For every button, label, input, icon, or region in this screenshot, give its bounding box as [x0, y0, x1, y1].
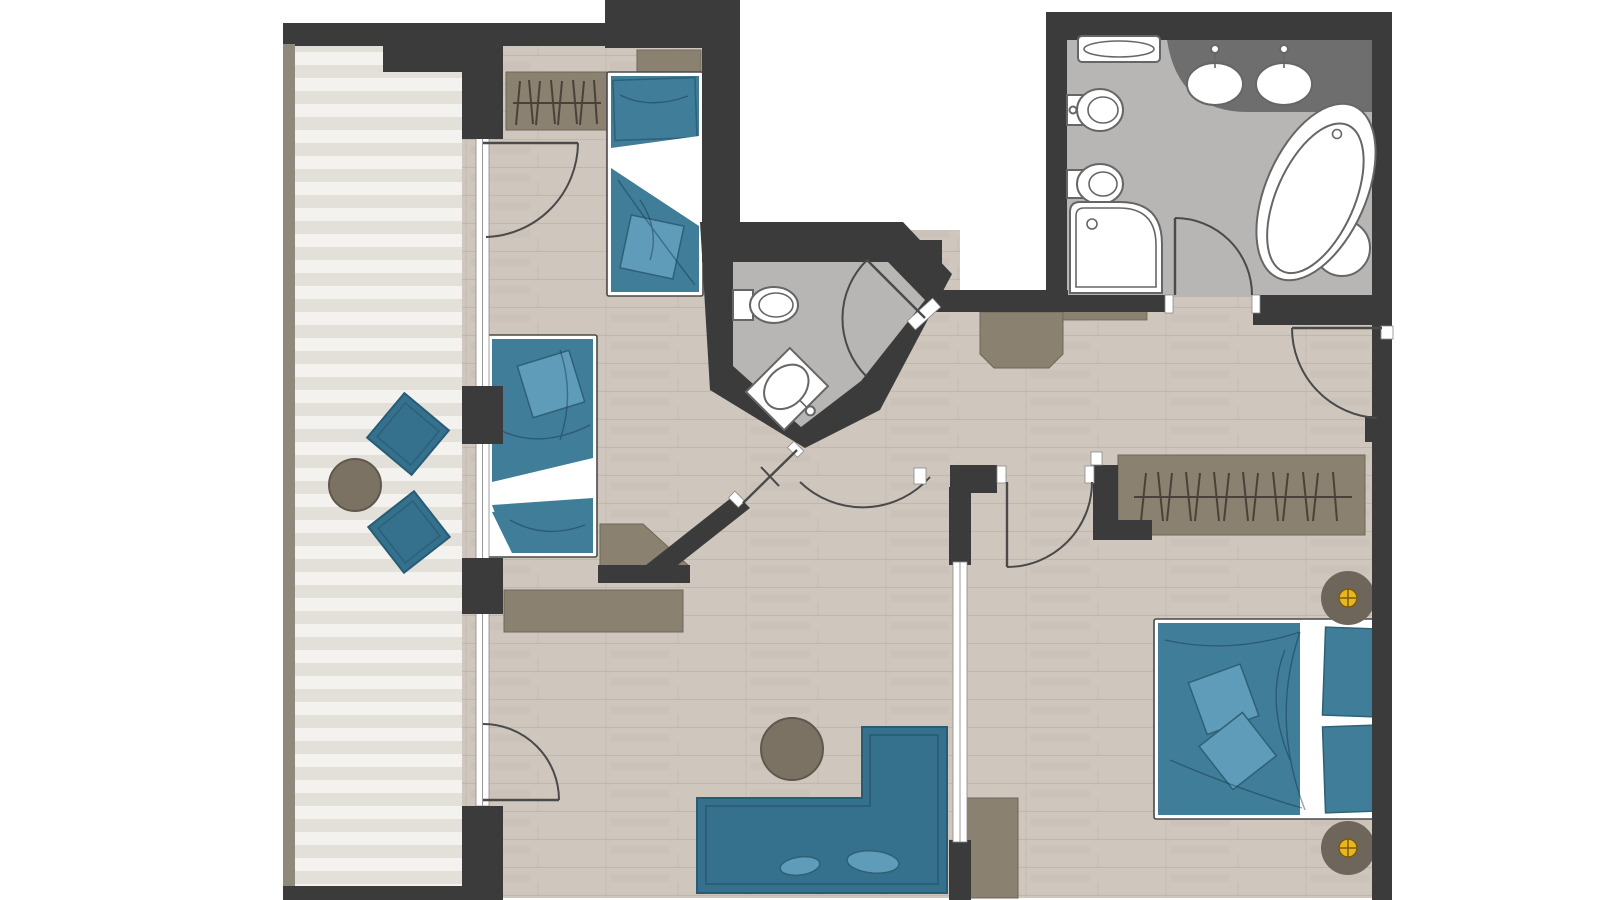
glass-post-top	[949, 487, 971, 565]
wc-toilet	[733, 287, 798, 323]
bedside-table	[1321, 821, 1375, 875]
right-wall-stub	[1365, 416, 1385, 442]
double-bed	[1154, 619, 1381, 819]
lamp-icon	[1339, 589, 1357, 607]
wall-band-c	[462, 558, 503, 614]
wall-step	[383, 45, 463, 72]
bathroom-bottom-wall-left	[1046, 295, 1172, 312]
wardrobe-side-stub	[1093, 465, 1118, 540]
bathroom-left-wall	[1046, 12, 1067, 312]
bidet	[1067, 89, 1123, 131]
wall-top-left	[283, 23, 610, 46]
balcony-table	[329, 459, 381, 511]
bed-pillow	[1322, 627, 1377, 717]
door-frame-strip	[1091, 452, 1102, 465]
living-sideboard	[504, 590, 683, 632]
single-bed-middle	[488, 335, 597, 557]
wardrobe-corner-stub	[1118, 520, 1152, 540]
floorplan-drawing	[0, 0, 1600, 900]
tv-cabinet	[967, 798, 1018, 898]
bed-headboard-shelf	[637, 50, 701, 72]
wardrobe-main-bedroom	[1118, 455, 1365, 535]
wall-band-a	[462, 46, 503, 139]
wall-band-b	[462, 386, 503, 444]
balcony-outer-wall	[283, 44, 295, 900]
bedside-table	[1321, 571, 1375, 625]
balcony-bottom-wall	[283, 886, 462, 900]
glass-post-bottom	[949, 840, 971, 900]
bathroom-toilet	[1067, 164, 1123, 204]
wardrobe-small-bedroom	[506, 72, 608, 130]
lamp-icon	[1339, 839, 1357, 857]
hall-sideboard	[980, 312, 1063, 368]
coffee-table	[761, 718, 823, 780]
shower	[1070, 202, 1162, 293]
single-bed-top	[607, 72, 703, 296]
bathroom-bottom-wall-right	[1253, 295, 1392, 325]
wall-band-d	[462, 806, 503, 900]
glass-partition	[953, 562, 967, 842]
bed-pillow	[613, 78, 697, 141]
bathroom-shelf	[1078, 36, 1160, 62]
balcony-decking	[293, 46, 476, 888]
floorplan-canvas	[0, 0, 1600, 900]
bed-pillow	[1323, 725, 1378, 813]
